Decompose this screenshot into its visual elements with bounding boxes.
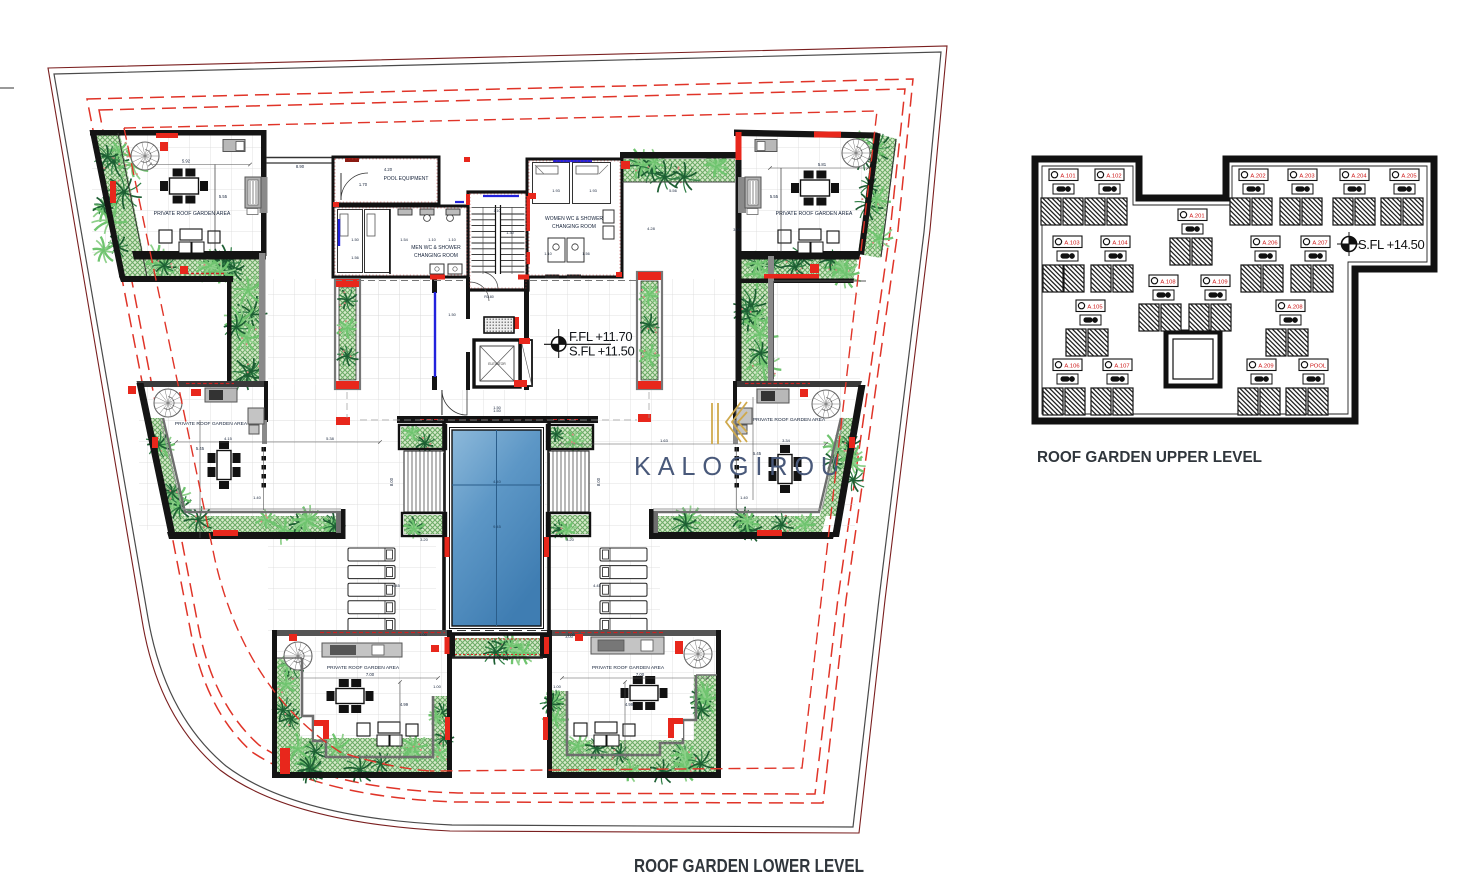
- svg-text:A.106: A.106: [1064, 363, 1079, 369]
- svg-text:8.00: 8.00: [596, 477, 601, 486]
- svg-text:1.40: 1.40: [740, 495, 749, 500]
- svg-text:A.103: A.103: [1064, 240, 1079, 246]
- svg-text:8.90: 8.90: [296, 164, 305, 169]
- svg-text:1.10: 1.10: [494, 209, 501, 213]
- svg-text:3.34: 3.34: [782, 438, 791, 443]
- svg-text:1.00: 1.00: [567, 632, 576, 637]
- svg-text:4.99: 4.99: [625, 702, 634, 707]
- svg-text:A.208: A.208: [1287, 304, 1302, 310]
- svg-text:A.201: A.201: [1189, 213, 1204, 219]
- svg-text:PRIVATE ROOF GARDEN AREA: PRIVATE ROOF GARDEN AREA: [154, 211, 231, 217]
- svg-text:PRIVATE ROOF GARDEN AREA: PRIVATE ROOF GARDEN AREA: [592, 665, 665, 671]
- svg-text:4.15: 4.15: [224, 436, 233, 441]
- svg-text:1.10: 1.10: [428, 237, 436, 242]
- svg-text:PRIVATE ROOF GARDEN AREA: PRIVATE ROOF GARDEN AREA: [175, 421, 248, 427]
- svg-text:3.20: 3.20: [420, 537, 429, 542]
- svg-text:A.102: A.102: [1106, 173, 1121, 179]
- svg-text:A.101: A.101: [1060, 173, 1075, 179]
- svg-text:1.63: 1.63: [660, 438, 669, 443]
- svg-text:A.104: A.104: [1112, 240, 1128, 246]
- svg-text:A.205: A.205: [1401, 173, 1416, 179]
- svg-text:1.93: 1.93: [552, 188, 560, 193]
- svg-text:1.40: 1.40: [253, 495, 262, 500]
- svg-text:1.50: 1.50: [493, 408, 502, 413]
- svg-text:1.00: 1.00: [419, 632, 428, 637]
- svg-text:3.20: 3.20: [566, 537, 575, 542]
- svg-text:1.00: 1.00: [553, 684, 562, 689]
- svg-text:WOMEN WC & SHOWER: WOMEN WC & SHOWER: [545, 216, 603, 222]
- svg-text:5.92: 5.92: [182, 159, 191, 164]
- svg-text:8.00: 8.00: [389, 477, 394, 486]
- svg-text:A.109: A.109: [1212, 279, 1227, 285]
- svg-text:7.00: 7.00: [636, 672, 645, 677]
- svg-text:A.204: A.204: [1351, 173, 1367, 179]
- svg-text:PRIVATE ROOF GARDEN AREA: PRIVATE ROOF GARDEN AREA: [753, 417, 826, 423]
- svg-text:1.56: 1.56: [582, 252, 589, 256]
- svg-text:5.81: 5.81: [818, 162, 827, 167]
- svg-text:POOL: POOL: [1310, 363, 1327, 369]
- svg-text:7.00: 7.00: [366, 672, 375, 677]
- svg-text:9.45: 9.45: [493, 524, 502, 529]
- svg-text:ELEVATOR: ELEVATOR: [488, 362, 506, 366]
- svg-text:A.202: A.202: [1250, 173, 1265, 179]
- svg-text:A.108: A.108: [1160, 279, 1175, 285]
- svg-text:S.FL +11.50: S.FL +11.50: [569, 344, 635, 359]
- svg-text:1.56: 1.56: [351, 255, 359, 260]
- svg-text:4.20: 4.20: [384, 167, 393, 172]
- svg-text:4.45: 4.45: [593, 583, 602, 588]
- svg-text:4.28: 4.28: [647, 226, 656, 231]
- svg-text:A.107: A.107: [1114, 363, 1129, 369]
- svg-text:3.00: 3.00: [733, 227, 742, 232]
- svg-text:A.203: A.203: [1299, 173, 1314, 179]
- svg-text:4.40: 4.40: [493, 479, 502, 484]
- svg-text:ROOF GARDEN UPPER LEVEL: ROOF GARDEN UPPER LEVEL: [1037, 449, 1262, 466]
- svg-text:1.10: 1.10: [448, 237, 456, 242]
- svg-text:A.206: A.206: [1262, 240, 1277, 246]
- svg-text:1.10: 1.10: [544, 252, 551, 256]
- svg-text:4.99: 4.99: [400, 702, 409, 707]
- svg-text:1.30: 1.30: [506, 231, 513, 235]
- svg-text:1.70: 1.70: [359, 182, 368, 187]
- svg-text:1.00: 1.00: [433, 684, 442, 689]
- svg-text:5.55: 5.55: [770, 194, 779, 199]
- svg-text:5.45: 5.45: [196, 446, 205, 451]
- svg-text:A.209: A.209: [1258, 363, 1273, 369]
- svg-text:PRIVATE ROOF GARDEN AREA: PRIVATE ROOF GARDEN AREA: [327, 665, 400, 671]
- svg-text:CHANGING ROOM: CHANGING ROOM: [414, 253, 458, 259]
- svg-text:A.207: A.207: [1312, 240, 1327, 246]
- svg-text:5.55: 5.55: [219, 194, 228, 199]
- svg-text:1.93: 1.93: [589, 188, 597, 193]
- svg-text:ROOF GARDEN LOWER LEVEL: ROOF GARDEN LOWER LEVEL: [634, 856, 864, 876]
- svg-text:MEN WC & SHOWER: MEN WC & SHOWER: [411, 245, 461, 251]
- svg-text:KALOGIROU: KALOGIROU: [634, 451, 846, 481]
- svg-text:5.38: 5.38: [326, 436, 335, 441]
- svg-text:1.54: 1.54: [400, 237, 408, 242]
- svg-text:5.56: 5.56: [669, 188, 678, 193]
- svg-text:PRIVATE ROOF GARDEN AREA: PRIVATE ROOF GARDEN AREA: [776, 211, 853, 217]
- svg-text:F.FL +11.70: F.FL +11.70: [569, 329, 632, 344]
- svg-text:CHANGING ROOM: CHANGING ROOM: [552, 224, 596, 230]
- svg-text:S.FL +14.50: S.FL +14.50: [1358, 237, 1424, 252]
- svg-text:A.105: A.105: [1087, 304, 1102, 310]
- svg-text:POOL EQUIPMENT: POOL EQUIPMENT: [384, 176, 429, 182]
- svg-text:4.45: 4.45: [392, 583, 401, 588]
- svg-text:1.50: 1.50: [448, 312, 456, 317]
- svg-text:1.50: 1.50: [351, 237, 359, 242]
- svg-text:R0.80: R0.80: [484, 295, 494, 299]
